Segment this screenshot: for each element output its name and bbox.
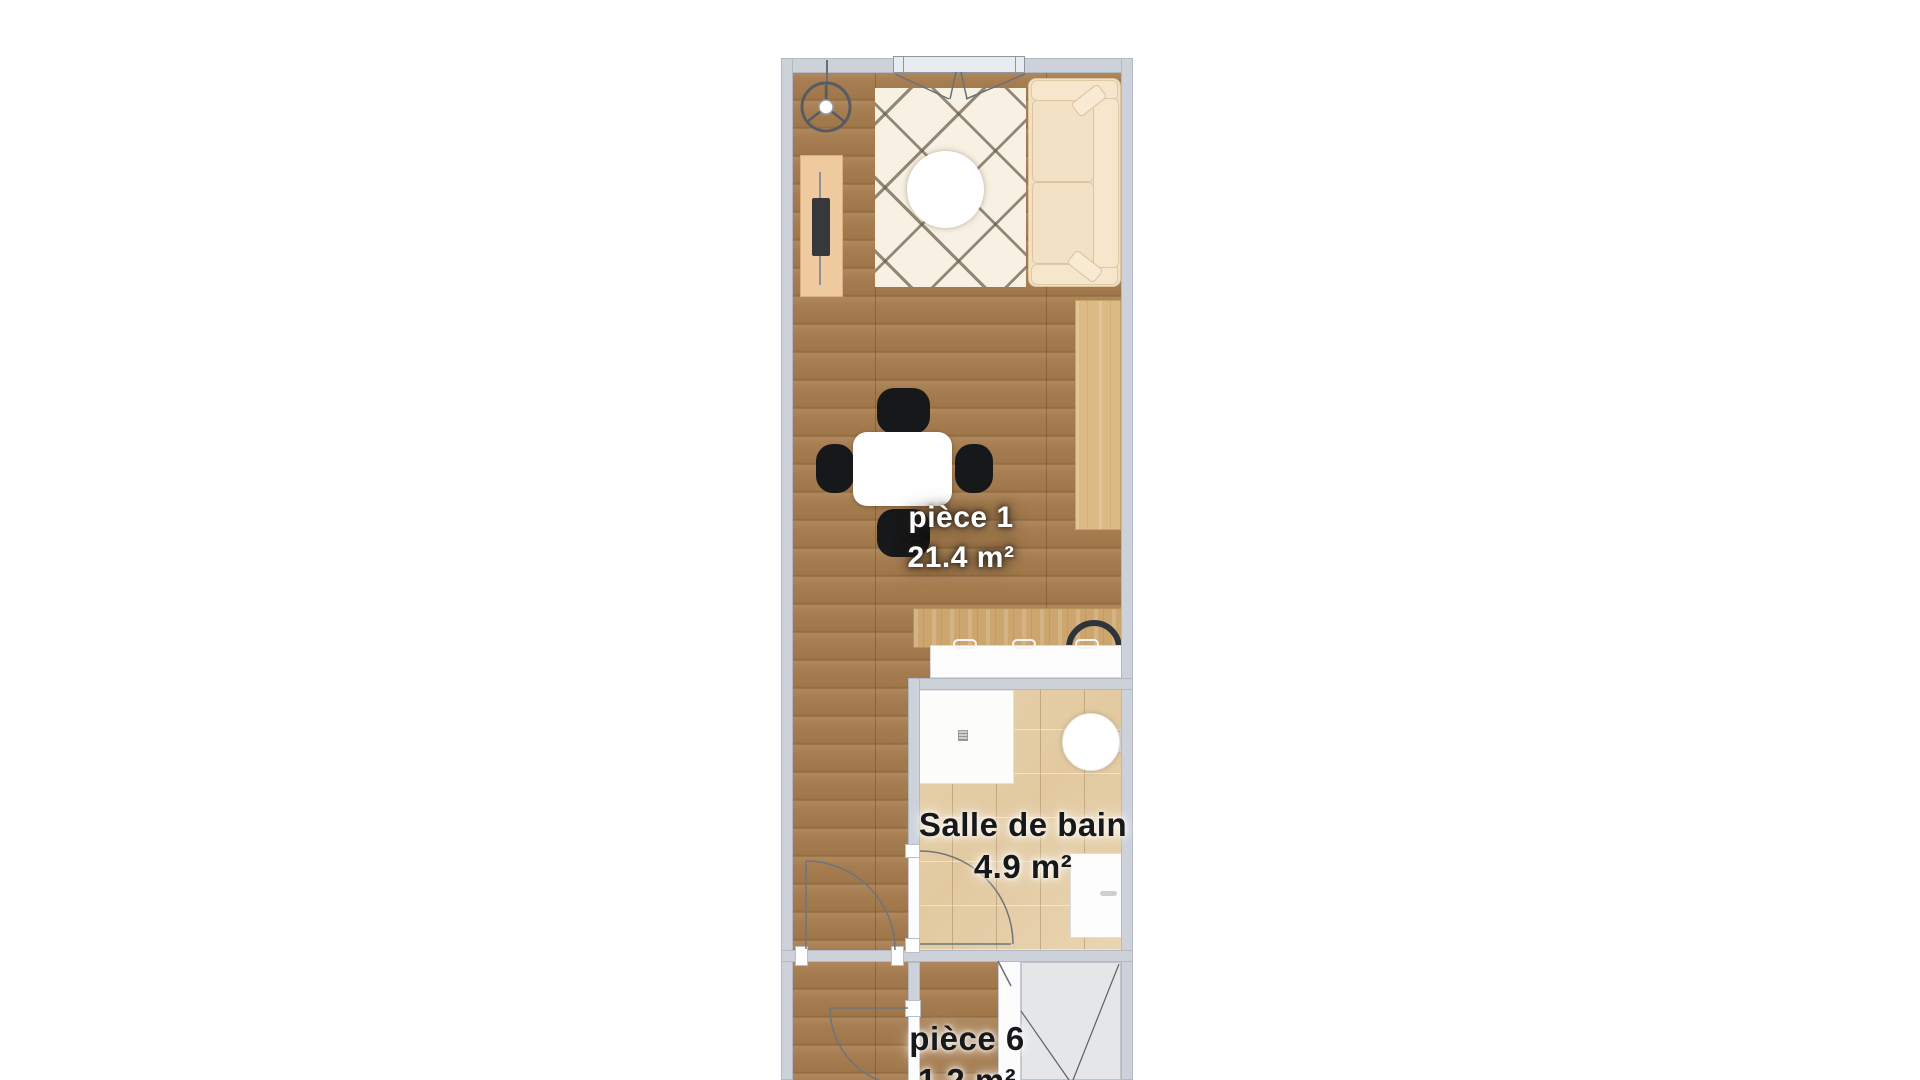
dining-chair-bottom[interactable]: [877, 509, 930, 557]
sofa-seat-cushion: [1032, 182, 1094, 264]
cabinet-handle: [1012, 639, 1036, 649]
window-mullion: [903, 57, 904, 72]
staircase-area[interactable]: [1021, 962, 1121, 1080]
window[interactable]: [893, 56, 1025, 73]
tv[interactable]: [812, 198, 830, 256]
wall-piece6-left: [908, 962, 920, 1002]
door-jamb: [905, 1000, 921, 1017]
sofa-backrest: [1093, 98, 1119, 268]
bottom-room-door-opening: [908, 1017, 920, 1080]
wall-bottom: [781, 950, 1133, 962]
window-mullion: [1015, 57, 1016, 72]
washbasin[interactable]: [1062, 713, 1120, 771]
door-jamb: [905, 844, 920, 858]
cabinet-handle: [1075, 639, 1099, 649]
bathroom-door-opening: [908, 845, 920, 950]
piece6-stairs-gap: [998, 962, 1021, 1080]
wall-bathroom-top: [908, 678, 1133, 690]
washing-machine-handle: [1100, 891, 1117, 896]
kitchen-cabinet-front[interactable]: [930, 645, 1122, 678]
door-jamb: [891, 946, 904, 966]
room-bottom-left-floor[interactable]: [793, 962, 908, 1080]
door-jamb: [795, 946, 808, 966]
dining-table[interactable]: [853, 432, 952, 506]
floor-plan-canvas: pièce 1 21.4 m² Salle de bain 4.9 m² piè…: [0, 0, 1920, 1080]
dining-chair-right[interactable]: [955, 444, 993, 493]
cabinet-handle: [953, 639, 977, 649]
door-jamb: [905, 938, 920, 953]
wall-right: [1121, 58, 1133, 1080]
dining-chair-top[interactable]: [877, 388, 930, 434]
shower-drain-icon: [958, 730, 968, 741]
dining-chair-left[interactable]: [816, 444, 854, 493]
wall-left: [781, 58, 793, 1080]
wall-bathroom-left: [908, 678, 920, 845]
room-piece6-floor[interactable]: [920, 962, 998, 1080]
wall-desk[interactable]: [1075, 300, 1121, 530]
round-coffee-table[interactable]: [907, 151, 984, 228]
